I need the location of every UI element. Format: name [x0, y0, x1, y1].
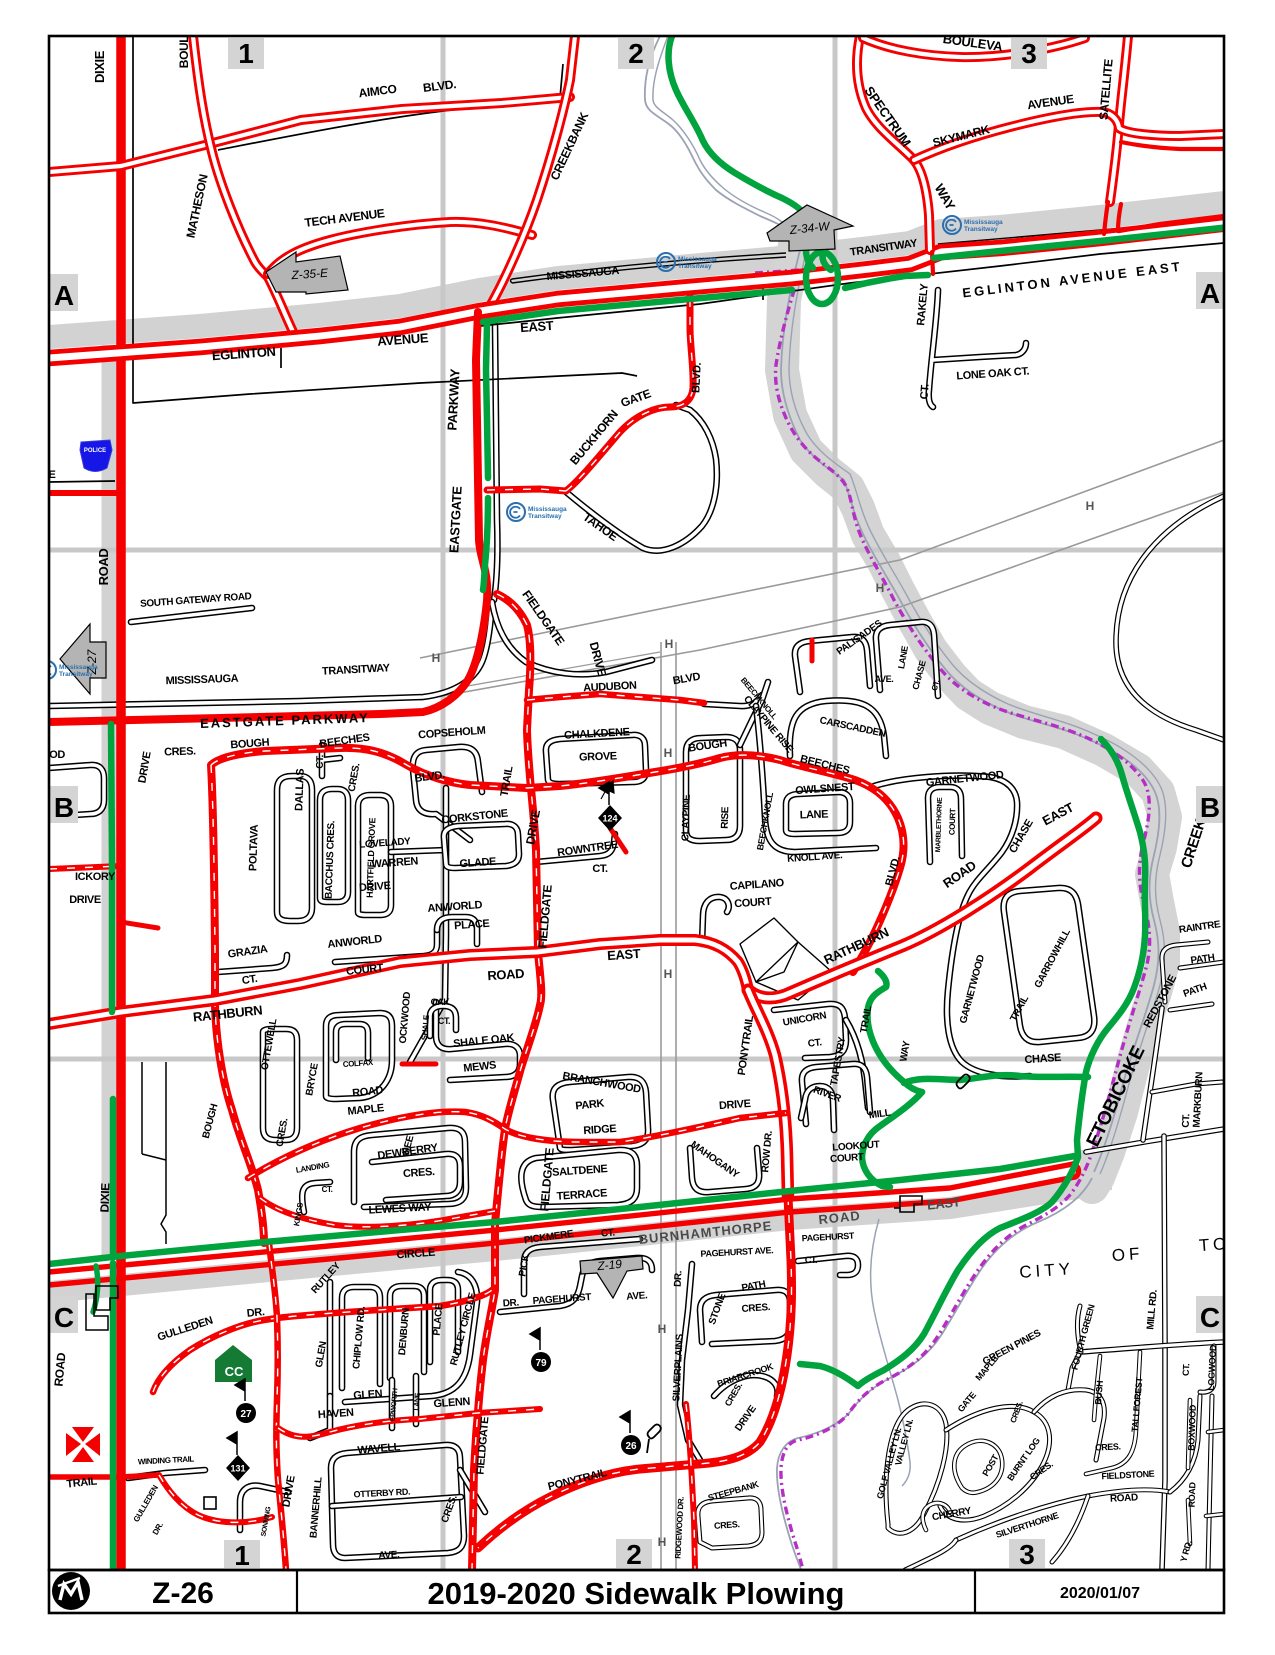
svg-text:AVE.: AVE.	[875, 674, 894, 684]
svg-text:CRES.: CRES.	[164, 745, 196, 758]
svg-text:POLICE: POLICE	[84, 448, 106, 454]
svg-text:CT.: CT.	[438, 1016, 450, 1026]
svg-text:Transitway: Transitway	[678, 263, 712, 270]
svg-text:Mississauga: Mississauga	[59, 664, 98, 671]
svg-text:BUSH: BUSH	[1093, 1380, 1105, 1405]
svg-text:H: H	[876, 581, 885, 595]
svg-text:B: B	[54, 792, 74, 823]
svg-text:ROAD: ROAD	[487, 966, 525, 984]
svg-text:131: 131	[230, 1464, 245, 1474]
svg-text:H: H	[664, 746, 673, 760]
svg-text:ROAD: ROAD	[1187, 1481, 1198, 1507]
svg-text:AVE.: AVE.	[378, 1549, 400, 1561]
svg-text:H: H	[658, 1322, 667, 1336]
svg-text:BLVD.: BLVD.	[690, 362, 704, 393]
svg-text:BOUL: BOUL	[177, 36, 191, 68]
svg-text:CT.: CT.	[315, 754, 326, 769]
svg-text:DR.: DR.	[246, 1306, 265, 1320]
svg-text:C: C	[54, 1302, 74, 1333]
svg-text:CC: CC	[225, 1364, 244, 1379]
svg-text:COURT: COURT	[948, 808, 958, 835]
svg-text:CT.: CT.	[807, 1037, 822, 1049]
svg-text:CITY: CITY	[1019, 1259, 1075, 1282]
svg-text:H: H	[432, 651, 441, 665]
svg-text:2: 2	[626, 1539, 642, 1570]
svg-text:BOXWOOD: BOXWOOD	[1186, 1404, 1198, 1451]
svg-text:POLTAVA: POLTAVA	[247, 824, 261, 871]
svg-text:A: A	[1200, 278, 1220, 309]
svg-text:2020/01/07: 2020/01/07	[1060, 1585, 1140, 1602]
svg-text:CHASE: CHASE	[1024, 1052, 1061, 1067]
svg-text:CT.: CT.	[241, 973, 258, 987]
svg-text:F: F	[81, 1441, 86, 1450]
svg-text:2: 2	[628, 38, 644, 69]
svg-text:DRIVE: DRIVE	[719, 1098, 751, 1112]
svg-text:ROAD: ROAD	[52, 1352, 69, 1388]
svg-text:ROAD: ROAD	[96, 549, 111, 586]
svg-text:CT.: CT.	[322, 1185, 333, 1194]
svg-text:26: 26	[625, 1441, 637, 1452]
svg-text:124: 124	[602, 814, 617, 824]
svg-text:CRES.: CRES.	[403, 1166, 436, 1180]
svg-text:H: H	[664, 967, 673, 981]
svg-text:H: H	[665, 637, 674, 651]
svg-text:DR.: DR.	[673, 1270, 685, 1287]
svg-text:LANE: LANE	[800, 809, 829, 822]
svg-text:CT.: CT.	[918, 383, 931, 400]
svg-text:3: 3	[1021, 38, 1037, 69]
svg-text:HAVEN: HAVEN	[318, 1407, 355, 1421]
svg-text:CRES.: CRES.	[714, 1519, 740, 1531]
svg-text:DIXIE: DIXIE	[92, 50, 107, 83]
svg-text:EAST: EAST	[520, 318, 554, 335]
svg-text:RIDGE: RIDGE	[583, 1123, 617, 1137]
svg-text:GLADE: GLADE	[459, 856, 496, 871]
svg-text:79: 79	[535, 1358, 547, 1369]
svg-text:Transitway: Transitway	[528, 513, 562, 520]
svg-text:Z-35-E: Z-35-E	[290, 266, 330, 283]
svg-text:GROVE: GROVE	[579, 750, 617, 763]
svg-text:H: H	[658, 1535, 667, 1549]
svg-text:Z-26: Z-26	[152, 1577, 214, 1610]
svg-text:DRIVE: DRIVE	[69, 894, 101, 906]
svg-text:CT.: CT.	[592, 863, 608, 875]
svg-text:EAST: EAST	[607, 946, 641, 963]
svg-text:DR.: DR.	[502, 1297, 519, 1309]
svg-text:Z-19: Z-19	[596, 1257, 623, 1274]
svg-text:1: 1	[234, 1540, 250, 1571]
svg-text:DRIVE: DRIVE	[359, 880, 391, 894]
svg-text:C: C	[1200, 1302, 1220, 1333]
svg-text:OAK: OAK	[431, 997, 451, 1007]
svg-text:27: 27	[240, 1409, 252, 1420]
svg-text:B: B	[1200, 792, 1220, 823]
svg-text:MISSISSAUGA: MISSISSAUGA	[165, 673, 238, 688]
svg-text:Mississauga: Mississauga	[528, 506, 567, 513]
svg-text:Mississauga: Mississauga	[678, 256, 717, 263]
svg-text:Transitway: Transitway	[964, 226, 998, 233]
svg-text:CT.: CT.	[601, 1227, 616, 1239]
svg-text:OF: OF	[1111, 1244, 1144, 1265]
svg-text:CRES.: CRES.	[1095, 1441, 1121, 1452]
svg-text:A: A	[54, 280, 74, 311]
svg-text:CT.: CT.	[805, 1255, 817, 1265]
svg-text:CT.: CT.	[1181, 1363, 1192, 1376]
svg-text:GLEN: GLEN	[353, 1388, 383, 1402]
svg-text:3: 3	[1019, 1539, 1035, 1570]
svg-text:ROAD: ROAD	[1110, 1492, 1139, 1504]
svg-text:DALLAS: DALLAS	[293, 769, 306, 812]
svg-text:DIXIE: DIXIE	[97, 1183, 112, 1213]
svg-text:Transitway: Transitway	[59, 671, 93, 678]
svg-text:COURT: COURT	[830, 1152, 865, 1165]
svg-text:H: H	[1086, 499, 1095, 513]
svg-text:ICKORY: ICKORY	[75, 871, 116, 883]
svg-text:PLACE: PLACE	[454, 918, 490, 932]
svg-text:AVE.: AVE.	[626, 1290, 648, 1302]
svg-text:RISE: RISE	[720, 806, 732, 829]
svg-text:CLAYPINE: CLAYPINE	[680, 794, 693, 842]
svg-text:CT.: CT.	[1181, 1113, 1193, 1128]
svg-text:2019-2020 Sidewalk Plowing: 2019-2020 Sidewalk Plowing	[428, 1576, 845, 1611]
svg-text:1: 1	[238, 38, 254, 69]
svg-text:CRES.: CRES.	[741, 1302, 771, 1315]
svg-text:Mississauga: Mississauga	[964, 219, 1003, 226]
